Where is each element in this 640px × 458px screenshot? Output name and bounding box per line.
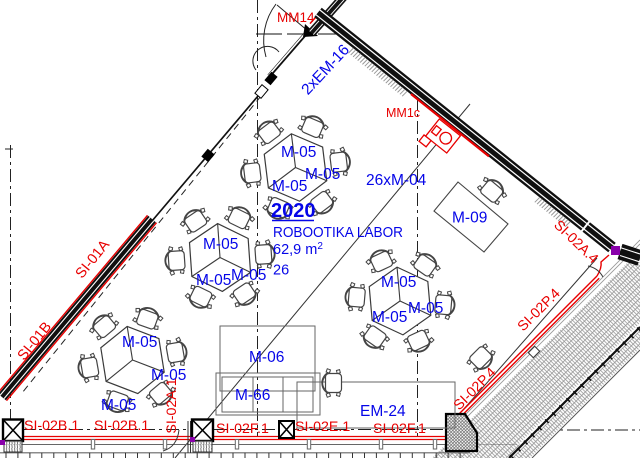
svg-text:26xM-04: 26xM-04	[366, 172, 427, 189]
svg-text:M-05: M-05	[196, 272, 231, 289]
svg-text:M-05: M-05	[305, 166, 340, 183]
svg-text:2020: 2020	[271, 200, 316, 222]
svg-text:M-05: M-05	[122, 334, 157, 351]
svg-text:M-66: M-66	[235, 387, 270, 404]
svg-text:SI-02B.1: SI-02B.1	[94, 418, 149, 434]
svg-text:62,9 m2: 62,9 m2	[273, 241, 323, 258]
svg-text:MM14: MM14	[277, 10, 315, 25]
svg-text:M-06: M-06	[249, 349, 284, 366]
svg-text:M-05: M-05	[381, 274, 416, 291]
svg-text:SI-02A.1: SI-02A.1	[164, 378, 180, 433]
svg-text:M-05: M-05	[281, 144, 316, 161]
svg-text:M-05: M-05	[101, 397, 136, 414]
svg-text:M-05: M-05	[272, 178, 307, 195]
svg-text:M-05: M-05	[372, 309, 407, 326]
svg-text:SI-02E.1: SI-02E.1	[295, 419, 350, 435]
svg-text:M-05: M-05	[203, 236, 238, 253]
svg-text:M-05: M-05	[408, 300, 443, 317]
svg-text:M-05: M-05	[231, 267, 266, 284]
svg-text:ROBOOTIKA LABOR: ROBOOTIKA LABOR	[273, 224, 403, 241]
svg-text:MM1c: MM1c	[386, 106, 420, 120]
svg-text:SI-02B.1: SI-02B.1	[24, 418, 79, 434]
svg-text:M-09: M-09	[452, 210, 487, 227]
svg-text:EM-24: EM-24	[360, 403, 406, 420]
svg-text:26: 26	[273, 263, 289, 279]
svg-text:SI-02F.1: SI-02F.1	[216, 421, 269, 437]
svg-text:SI-02F.1: SI-02F.1	[373, 421, 426, 437]
